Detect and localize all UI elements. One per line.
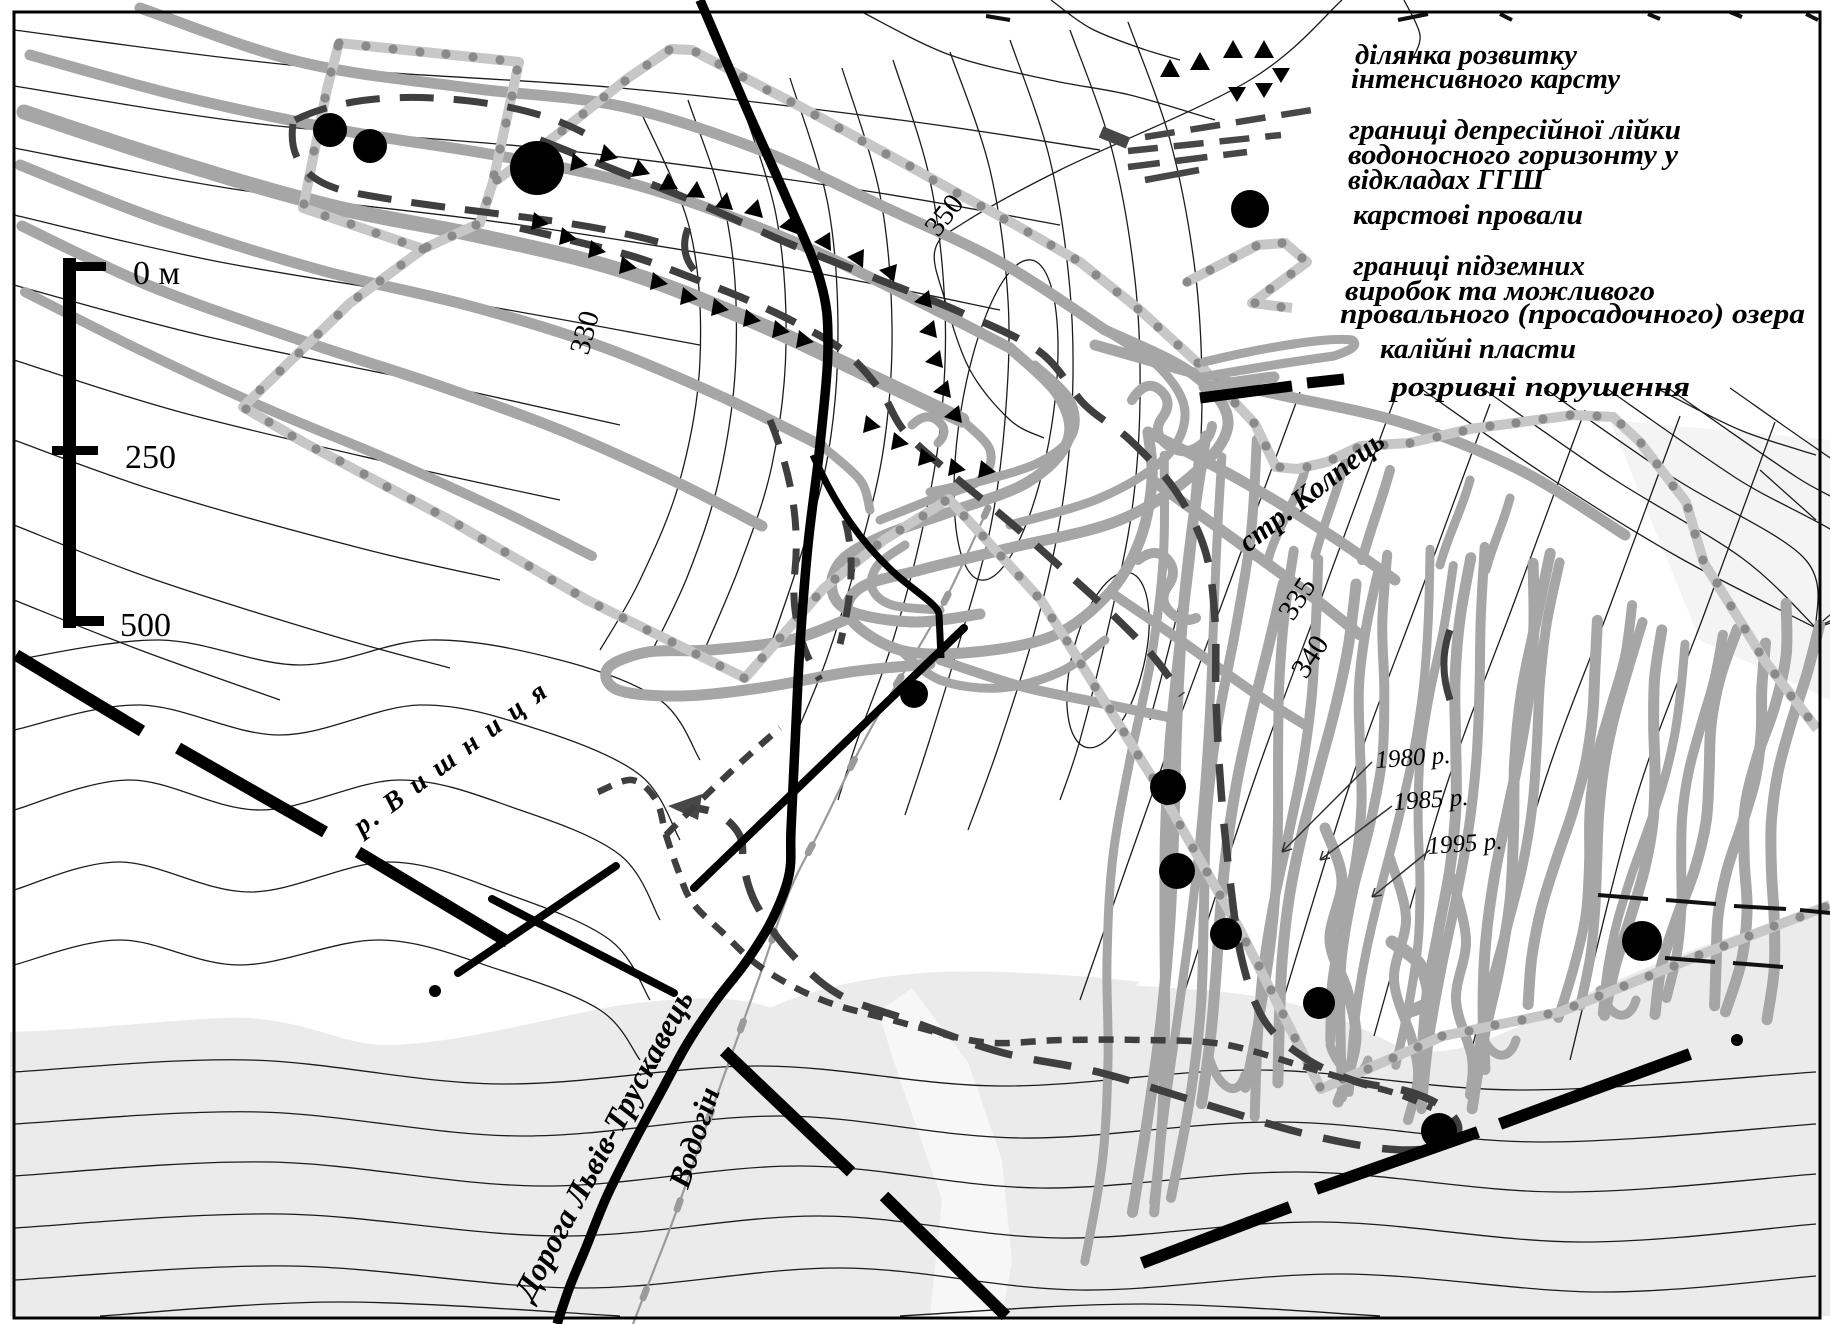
- svg-text:інтенсивного карсту: інтенсивного карсту: [1351, 63, 1620, 95]
- svg-text:розривні порушення: розривні порушення: [1388, 371, 1690, 403]
- svg-text:провального (просадочного) озе: провального (просадочного) озера: [1340, 298, 1805, 330]
- svg-text:калійні пласти: калійні пласти: [1380, 333, 1576, 365]
- svg-text:1980 р.: 1980 р.: [1375, 742, 1452, 774]
- svg-text:500: 500: [120, 607, 171, 644]
- svg-text:відкладах ГГШ: відкладах ГГШ: [1348, 164, 1545, 196]
- svg-text:0 м: 0 м: [133, 255, 180, 292]
- svg-text:250: 250: [125, 439, 176, 476]
- svg-text:1985 р.: 1985 р.: [1393, 784, 1470, 816]
- svg-text:1995 р.: 1995 р.: [1427, 828, 1504, 860]
- svg-text:карстові провали: карстові провали: [1353, 199, 1583, 231]
